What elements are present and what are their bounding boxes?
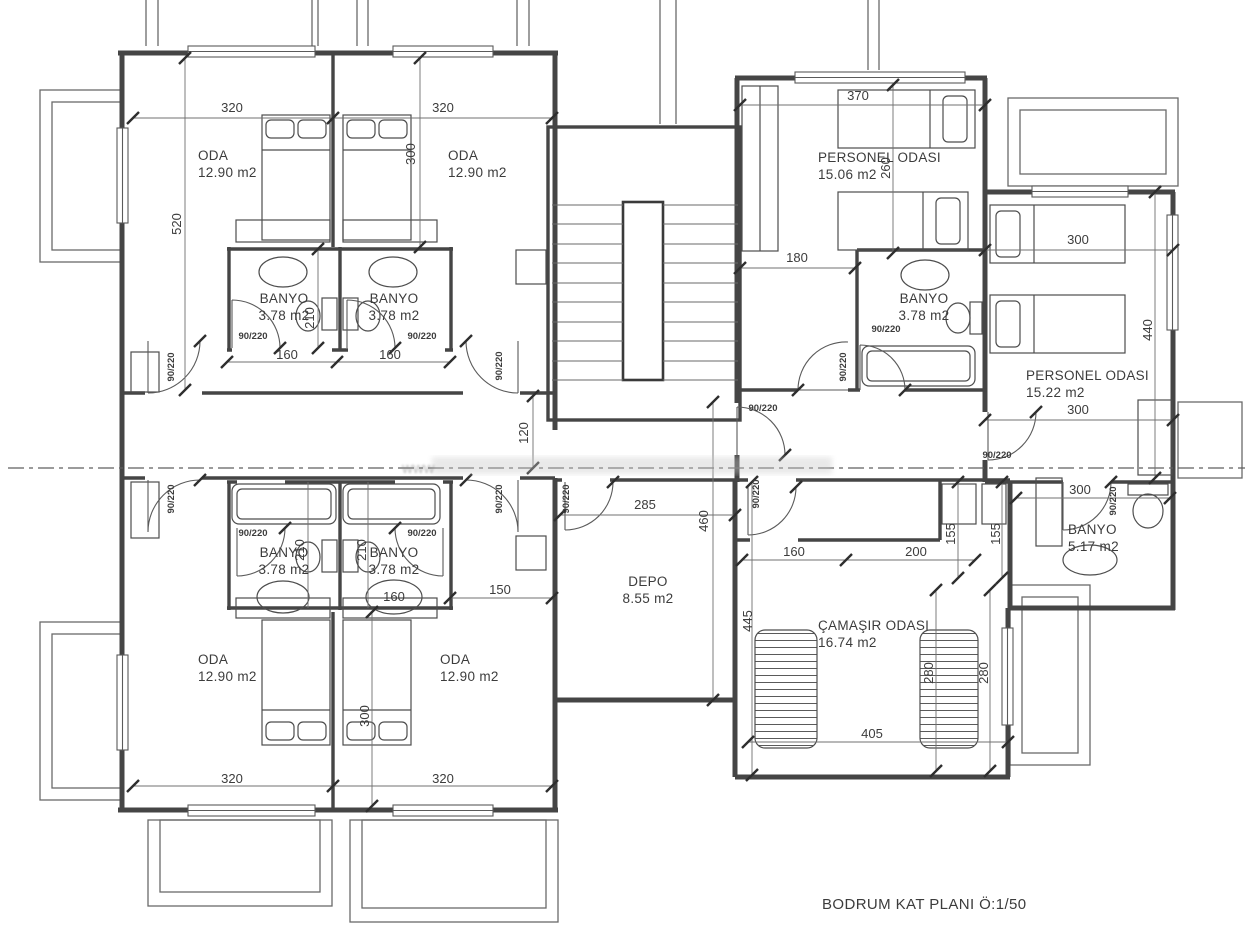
room-label-oda-top-left: ODA12.90 m2 xyxy=(198,148,257,180)
door-size-label: 90/220 xyxy=(751,479,762,508)
door-size-label: 90/220 xyxy=(1108,486,1119,515)
toilet xyxy=(946,303,970,333)
dimension-label: 210 xyxy=(292,539,307,561)
dimension-label: 160 xyxy=(379,347,401,362)
dimension-label: 320 xyxy=(432,100,454,115)
window-band xyxy=(117,655,128,750)
dimension-label: 210 xyxy=(302,307,317,329)
dimension-label: 300 xyxy=(403,143,418,165)
door-size-label: 90/220 xyxy=(982,450,1011,461)
fixtures xyxy=(131,86,1172,748)
dimension-label: 155 xyxy=(988,523,1003,545)
staircase xyxy=(548,127,740,420)
room-label-banyo-517: BANYO5.17 m2 xyxy=(1068,522,1119,554)
window-band xyxy=(1167,215,1178,330)
door-swing xyxy=(737,407,785,455)
watermark-text: www xyxy=(401,460,435,477)
door-size-label: 90/220 xyxy=(238,528,267,539)
bed-single xyxy=(838,192,968,250)
door-size-label: 90/220 xyxy=(494,484,505,513)
bed-single xyxy=(990,205,1125,263)
window-band xyxy=(795,72,965,83)
bathtub xyxy=(232,484,336,524)
dimension-label: 120 xyxy=(516,422,531,444)
closet xyxy=(516,250,546,284)
room-label-oda-bottom-right: ODA12.90 m2 xyxy=(440,652,499,684)
window-band xyxy=(117,128,128,223)
bathtub xyxy=(867,351,970,381)
door-swing xyxy=(466,341,518,393)
closet xyxy=(131,352,159,392)
dimension-label: 300 xyxy=(357,705,372,727)
dimension-label: 280 xyxy=(921,662,936,684)
room-label-personel-banyo: BANYO3.78 m2 xyxy=(899,291,950,323)
dimension-label: 320 xyxy=(221,771,243,786)
dimension-label: 320 xyxy=(221,100,243,115)
dimension-label: 160 xyxy=(383,589,405,604)
dimension-label: 180 xyxy=(786,250,808,265)
duct xyxy=(942,484,976,524)
walls-inner xyxy=(122,53,1173,808)
room-label-camasir-odasi: ÇAMAŞIR ODASI16.74 m2 xyxy=(818,618,929,650)
dimension-label: 520 xyxy=(169,213,184,235)
washbasin xyxy=(259,257,307,287)
door-size-label: 90/220 xyxy=(166,484,177,513)
bathtub xyxy=(862,346,975,386)
dimension-label: 370 xyxy=(847,88,869,103)
door-swing xyxy=(466,480,518,532)
room-label-oda-top-right: ODA12.90 m2 xyxy=(448,148,507,180)
dimension-label: 300 xyxy=(1067,232,1089,247)
closet xyxy=(516,536,546,570)
plan-title: BODRUM KAT PLANI Ö:1/50 xyxy=(822,895,1027,913)
bathtub xyxy=(343,484,440,524)
room-label-personel-odasi-2: PERSONEL ODASI15.22 m2 xyxy=(1026,368,1149,400)
closet xyxy=(131,482,159,538)
room-label-oda-bottom-left: ODA12.90 m2 xyxy=(198,652,257,684)
bathtub xyxy=(237,489,331,519)
window-band xyxy=(188,46,315,57)
toilet xyxy=(1133,494,1163,528)
dimension-label: 405 xyxy=(861,726,883,741)
door-size-label: 90/220 xyxy=(407,331,436,342)
bed-single xyxy=(990,295,1125,353)
door-size-label: 90/220 xyxy=(838,352,849,381)
toilet-tank xyxy=(322,540,337,572)
dimension-label: 440 xyxy=(1140,319,1155,341)
window-band xyxy=(393,46,493,57)
dimension-label: 285 xyxy=(634,497,656,512)
dimension-label: 150 xyxy=(489,582,511,597)
dimension-label: 260 xyxy=(878,157,893,179)
room-label-depo: DEPO8.55 m2 xyxy=(623,574,674,606)
room-label-banyo-bottom-right: BANYO3.78 m2 xyxy=(369,545,420,577)
door-swing xyxy=(565,482,613,530)
dimension-label: 300 xyxy=(1069,482,1091,497)
door-size-label: 90/220 xyxy=(166,352,177,381)
laundry-rack xyxy=(755,630,817,748)
dimension-label: 160 xyxy=(783,544,805,559)
window-band xyxy=(393,805,493,816)
room-label-banyo-top-right: BANYO3.78 m2 xyxy=(369,291,420,323)
door-size-label: 90/220 xyxy=(494,351,505,380)
dimension-label: 210 xyxy=(354,539,369,561)
walls-outer xyxy=(118,51,1175,810)
toilet-tank xyxy=(1128,484,1168,495)
window-band xyxy=(188,805,315,816)
window-band xyxy=(1032,186,1128,197)
dimension-label: 200 xyxy=(905,544,927,559)
shower-unit xyxy=(1036,478,1062,546)
dimension-lines xyxy=(133,58,1173,806)
washbasin xyxy=(369,257,417,287)
window-band xyxy=(1002,628,1013,725)
floor-plan-canvas: www ODA12.90 m2ODA12.90 m2BANYO3.78 m2BA… xyxy=(0,0,1250,930)
door-size-label: 90/220 xyxy=(871,324,900,335)
dimension-label: 160 xyxy=(276,347,298,362)
laundry-rack xyxy=(920,630,978,748)
bathtub xyxy=(348,489,435,519)
toilet-tank xyxy=(322,298,337,330)
toilet-tank xyxy=(970,302,982,334)
dimension-label: 155 xyxy=(943,523,958,545)
dimension-label: 280 xyxy=(976,662,991,684)
door-size-label: 90/220 xyxy=(407,528,436,539)
door-size-label: 90/220 xyxy=(238,331,267,342)
dimension-label: 445 xyxy=(740,610,755,632)
door-size-label: 90/220 xyxy=(748,403,777,414)
dimension-label: 300 xyxy=(1067,402,1089,417)
door-size-label: 90/220 xyxy=(561,484,572,513)
watermark: www xyxy=(401,457,832,477)
dimension-label: 460 xyxy=(696,510,711,532)
dimension-label: 320 xyxy=(432,771,454,786)
bed-double xyxy=(343,115,437,242)
washbasin xyxy=(901,260,949,290)
